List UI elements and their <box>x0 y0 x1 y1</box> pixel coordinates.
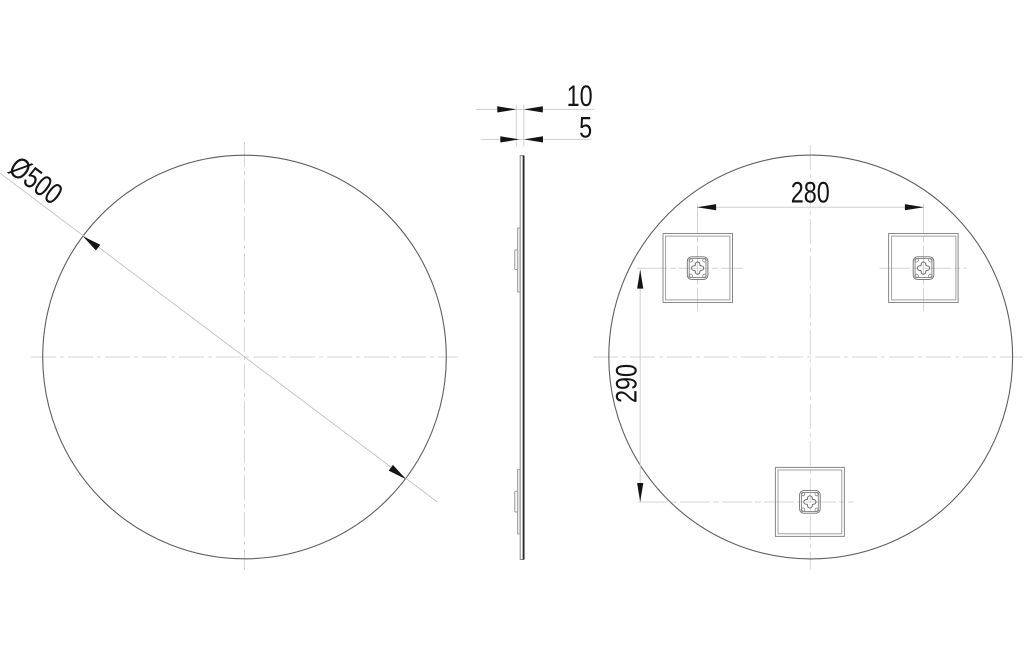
svg-text:5: 5 <box>579 111 592 144</box>
svg-text:280: 280 <box>791 176 830 209</box>
svg-text:Ø500: Ø500 <box>3 150 69 211</box>
svg-text:290: 290 <box>610 364 643 403</box>
svg-text:10: 10 <box>567 79 593 112</box>
